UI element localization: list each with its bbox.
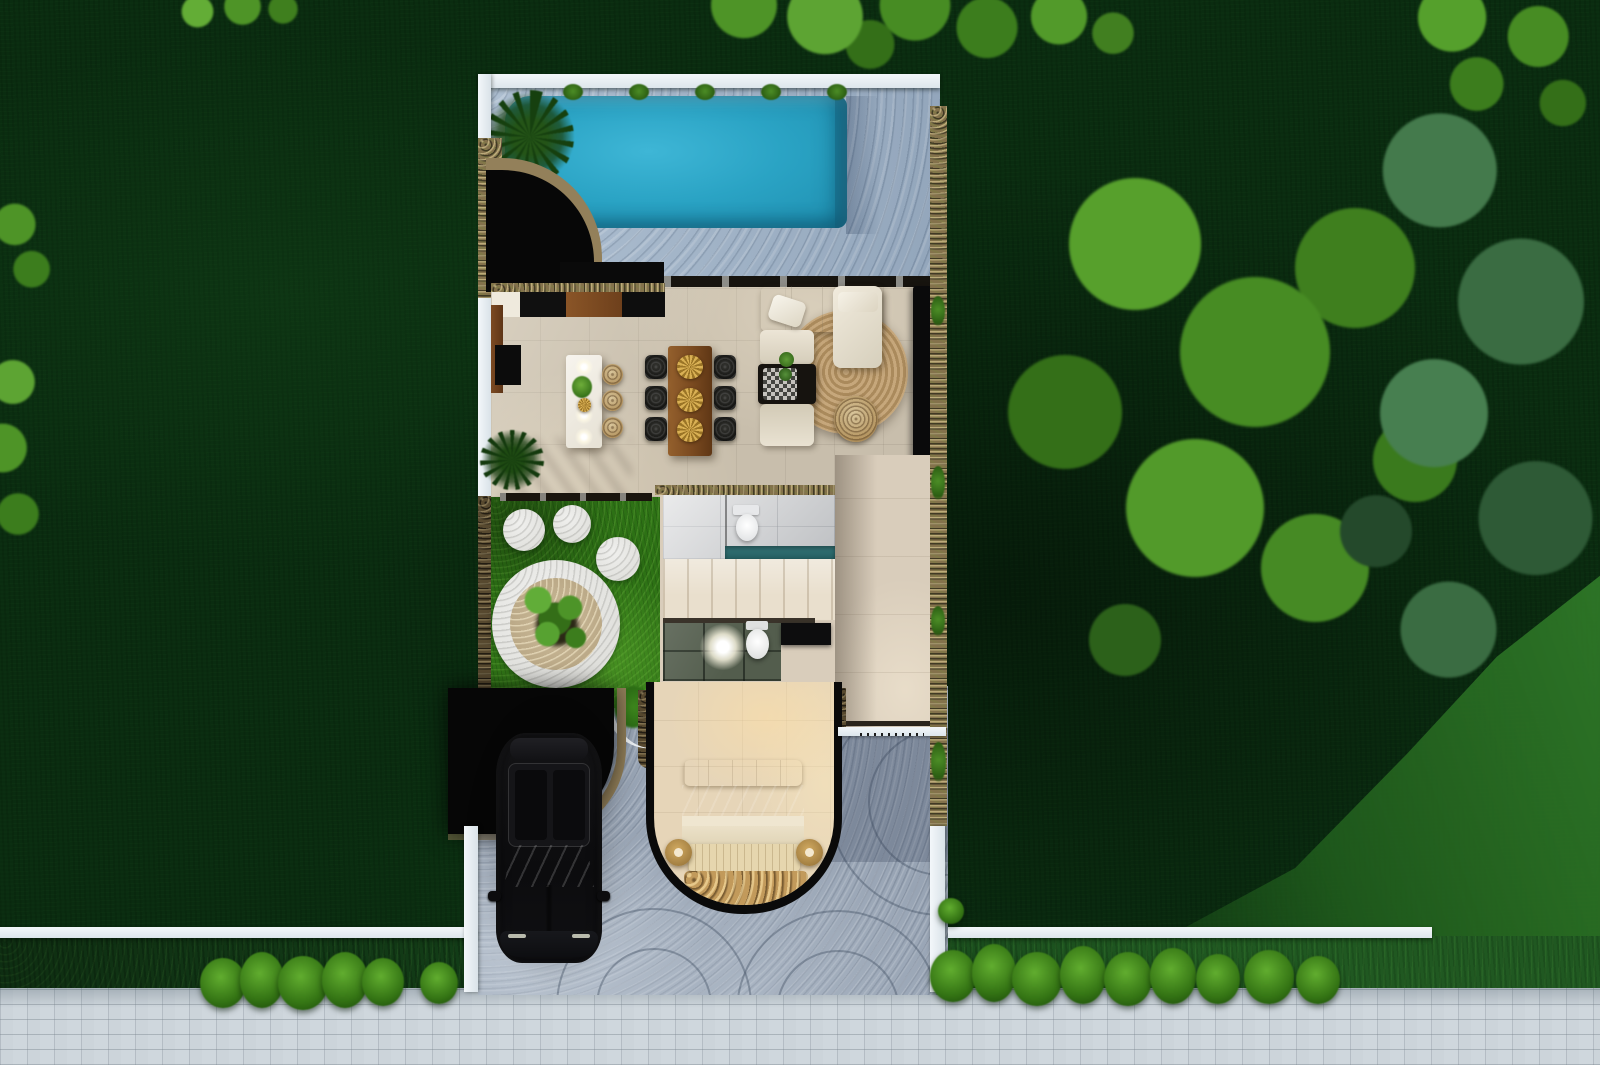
pendant-light bbox=[575, 358, 593, 376]
gold-platter bbox=[677, 418, 703, 442]
pool-deck-shadow bbox=[846, 96, 880, 234]
pool-edge-plant bbox=[629, 84, 649, 100]
table-plant bbox=[779, 368, 792, 381]
tree-top-left bbox=[160, 0, 310, 34]
pool-edge-plant bbox=[563, 84, 583, 100]
kitchen-cabinet-black bbox=[520, 292, 566, 317]
kitchen-counter-wood bbox=[566, 292, 622, 317]
sidewalk-bush bbox=[420, 962, 458, 1004]
courtyard-tree bbox=[508, 572, 602, 666]
floor-plant-palm bbox=[480, 430, 544, 490]
bed-pillows bbox=[684, 760, 802, 786]
dining-chair bbox=[645, 386, 667, 410]
dining-chair bbox=[714, 355, 736, 379]
bed-throw-blanket bbox=[682, 785, 804, 817]
sidewalk-bush bbox=[930, 950, 976, 1002]
bar-stool bbox=[602, 364, 623, 385]
car-hood bbox=[502, 885, 596, 933]
dining-chair bbox=[645, 417, 667, 441]
bed-foot-bench bbox=[688, 844, 800, 871]
tree-top-center bbox=[690, 0, 1140, 78]
tree-left-lower bbox=[0, 338, 70, 558]
sidewalk-bush bbox=[1012, 952, 1062, 1006]
hallway-floor bbox=[835, 455, 935, 731]
dining-chair bbox=[714, 386, 736, 410]
sunroof-panel bbox=[515, 770, 547, 840]
pool-edge-plant bbox=[827, 84, 847, 100]
aerial-floor-plan-render bbox=[0, 0, 1600, 1065]
pool-edge-plant bbox=[761, 84, 781, 100]
sofa-loveseat bbox=[760, 404, 814, 446]
pouf-button bbox=[674, 848, 683, 857]
wicker-pouf bbox=[834, 396, 878, 442]
car-headlight bbox=[572, 934, 590, 938]
sidewalk-bush bbox=[1244, 950, 1294, 1004]
island-gold-decor bbox=[578, 398, 591, 412]
border-plant bbox=[931, 742, 946, 782]
pouf-button bbox=[805, 848, 814, 857]
car-mirror bbox=[488, 891, 501, 901]
garden-sliding-door bbox=[500, 493, 652, 501]
car-front-bumper bbox=[500, 931, 598, 957]
tree-left-upper bbox=[0, 186, 82, 314]
gate-tick-marks bbox=[860, 733, 924, 736]
bathroom-vanity bbox=[781, 623, 831, 645]
tree-right-teal bbox=[1318, 72, 1600, 728]
dining-chair bbox=[645, 355, 667, 379]
toilet-bowl bbox=[746, 629, 769, 659]
pendant-light bbox=[575, 428, 593, 446]
border-plant bbox=[931, 296, 945, 326]
kitchen-tall-unit bbox=[495, 345, 521, 385]
island-plant bbox=[572, 376, 592, 398]
staircase bbox=[663, 559, 835, 620]
sidewalk-bush bbox=[1196, 954, 1240, 1004]
sidewalk-bush bbox=[1296, 956, 1340, 1004]
left-wall-upper bbox=[478, 74, 491, 142]
sidewalk-bush bbox=[972, 944, 1016, 1002]
bed-duvet bbox=[682, 826, 804, 846]
driveway-left-wall bbox=[464, 826, 478, 992]
sidewalk-bush bbox=[200, 958, 246, 1008]
sidewalk-bush bbox=[1060, 946, 1106, 1004]
bar-stool bbox=[602, 390, 623, 411]
car-mirror bbox=[597, 891, 610, 901]
bedroom-enclosure bbox=[646, 682, 842, 914]
paw-toe-stone bbox=[503, 509, 545, 551]
kitchen-wall-mosaic bbox=[491, 283, 665, 292]
border-plant bbox=[931, 606, 945, 636]
table-plant bbox=[779, 352, 794, 367]
driveway-bush bbox=[938, 898, 964, 924]
left-stone-border-lower bbox=[478, 496, 491, 692]
bar-stool bbox=[602, 417, 623, 438]
sidewalk-bush bbox=[1104, 952, 1152, 1006]
paw-toe-stone bbox=[596, 537, 640, 581]
dining-chair bbox=[714, 417, 736, 441]
car-rear-window bbox=[510, 738, 588, 760]
pool-edge-plant bbox=[695, 84, 715, 100]
sofa-pillow bbox=[838, 292, 878, 312]
gold-platter bbox=[677, 388, 703, 412]
car-windshield bbox=[504, 845, 594, 887]
paw-toe-stone bbox=[553, 505, 591, 543]
pebble-rug bbox=[684, 871, 808, 905]
sidewalk-bush bbox=[1150, 948, 1196, 1004]
kitchen-cabinet-black bbox=[622, 292, 665, 317]
bath-stone-edge bbox=[655, 485, 840, 495]
sunroof-panel bbox=[553, 770, 585, 840]
parked-car bbox=[496, 733, 602, 963]
bathroom-ceiling-light bbox=[700, 624, 746, 670]
toilet-bowl bbox=[736, 514, 758, 541]
pool-step-edge bbox=[835, 96, 847, 228]
shower-strip bbox=[725, 546, 835, 559]
sidewalk-bush bbox=[278, 956, 328, 1010]
sidewalk-bush bbox=[362, 958, 404, 1006]
street-wall-left bbox=[0, 927, 477, 938]
border-plant bbox=[931, 466, 945, 500]
street-wall-right bbox=[948, 927, 1432, 938]
hall-door-line bbox=[838, 721, 934, 726]
gold-platter bbox=[677, 355, 703, 379]
gate-line bbox=[838, 727, 946, 736]
bed-sheet-fold bbox=[682, 816, 804, 826]
car-roof bbox=[508, 763, 590, 847]
car-headlight bbox=[508, 934, 526, 938]
